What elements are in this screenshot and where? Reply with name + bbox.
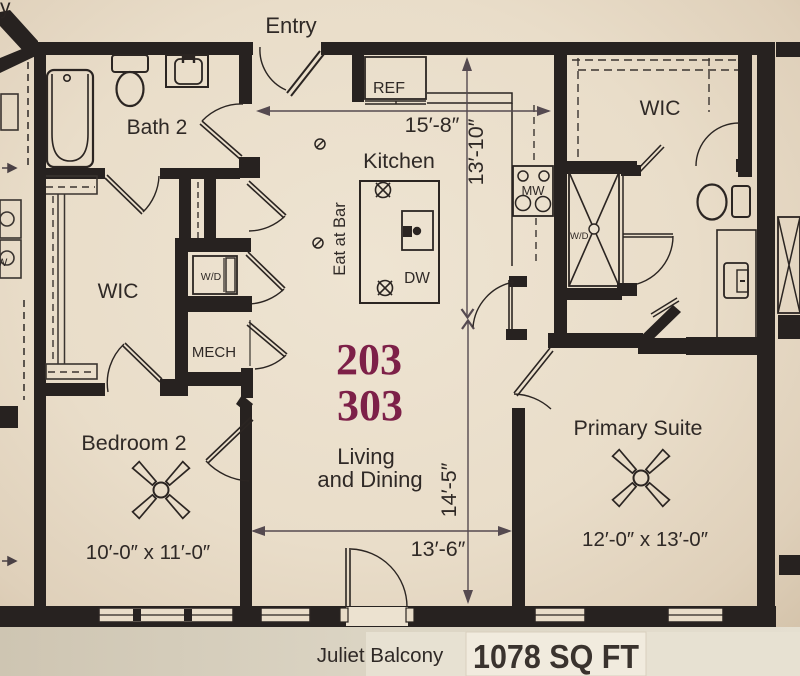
svg-text:13′-10″: 13′-10″ (464, 118, 488, 185)
svg-text:14′-5″: 14′-5″ (437, 462, 461, 517)
svg-text:Kitchen: Kitchen (363, 149, 435, 173)
svg-text:Entry: Entry (265, 13, 316, 38)
svg-text:303: 303 (337, 381, 403, 430)
svg-text:W/D: W/D (570, 231, 589, 242)
svg-text:Bath 2: Bath 2 (127, 116, 188, 139)
svg-text:DW: DW (404, 270, 430, 287)
svg-text:12′-0″ x 13′-0″: 12′-0″ x 13′-0″ (582, 528, 708, 551)
svg-text:WIC: WIC (98, 280, 139, 303)
svg-text:MECH: MECH (192, 344, 236, 361)
svg-text:MW: MW (521, 183, 545, 198)
svg-text:1078 SQ FT: 1078 SQ FT (473, 638, 639, 675)
svg-text:10′-0″ x 11′-0″: 10′-0″ x 11′-0″ (86, 541, 210, 564)
svg-text:Living: Living (337, 444, 394, 469)
svg-text:Bedroom 2: Bedroom 2 (81, 431, 186, 455)
svg-text:REF: REF (373, 80, 405, 97)
svg-text:W: W (0, 257, 8, 269)
svg-text:203: 203 (336, 335, 402, 384)
svg-text:y: y (0, 0, 11, 19)
svg-text:and Dining: and Dining (317, 467, 422, 492)
svg-text:W/D: W/D (201, 271, 222, 283)
svg-text:13′-6″: 13′-6″ (411, 537, 466, 561)
svg-text:Primary Suite: Primary Suite (573, 416, 702, 440)
svg-text:Juliet Balcony: Juliet Balcony (317, 644, 444, 667)
svg-text:WIC: WIC (640, 97, 681, 120)
svg-text:15′-8″: 15′-8″ (405, 113, 460, 137)
svg-text:Eat at Bar: Eat at Bar (331, 202, 349, 276)
